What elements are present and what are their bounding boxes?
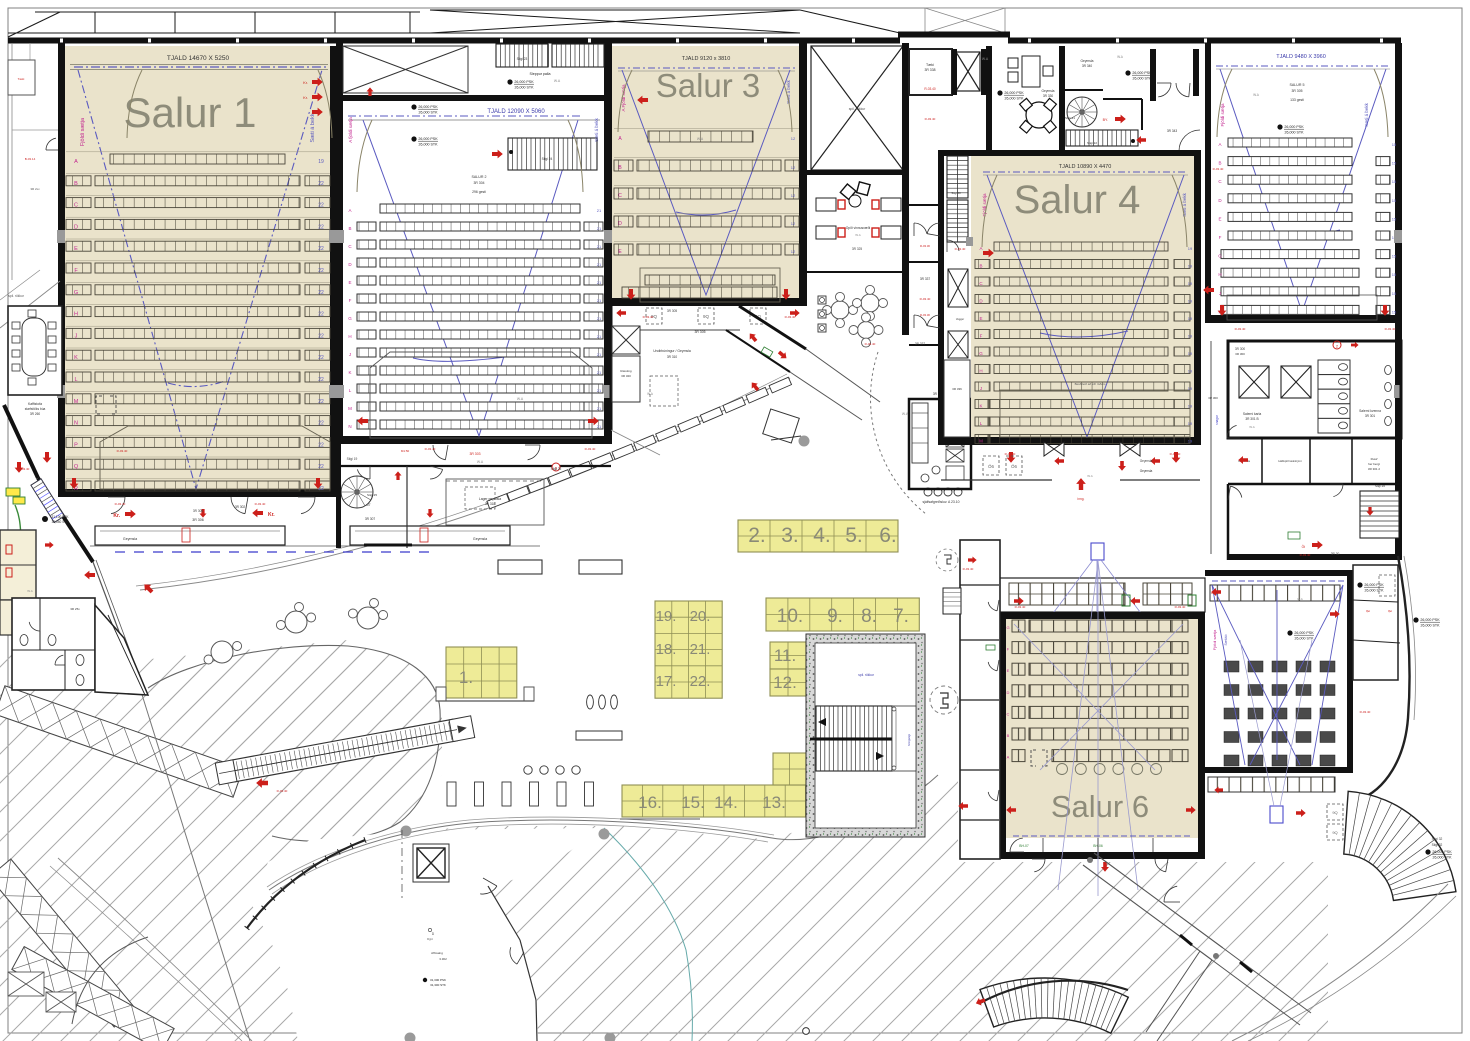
- svg-text:22: 22: [318, 355, 324, 361]
- svg-text:22: 22: [318, 421, 324, 427]
- svg-text:19: 19: [1188, 281, 1193, 286]
- svg-text:R-03.40: R-03.40: [117, 449, 128, 453]
- svg-text:Rusl/: Rusl/: [1371, 457, 1378, 461]
- svg-text:G: G: [1006, 625, 1009, 630]
- svg-text:C: C: [74, 203, 78, 209]
- svg-text:W.A: W.A: [902, 412, 909, 416]
- svg-text:Fjöldi sætja: Fjöldi sætja: [80, 117, 86, 146]
- svg-text:E: E: [348, 280, 351, 285]
- svg-text:A: A: [348, 208, 351, 213]
- svg-text:22: 22: [318, 268, 324, 274]
- svg-text:F: F: [349, 298, 352, 303]
- svg-text:3R 330: 3R 330: [1043, 94, 1054, 98]
- svg-text:snagar: snagar: [1215, 414, 1219, 425]
- svg-text:3R 340: 3R 340: [1082, 64, 1093, 68]
- svg-text:3R 305: 3R 305: [695, 330, 706, 334]
- svg-text:Geymsla: Geymsla: [473, 537, 487, 541]
- svg-text:K: K: [348, 370, 351, 375]
- svg-text:19: 19: [1188, 439, 1193, 444]
- svg-text:Kr.: Kr.: [113, 513, 120, 519]
- svg-text:Affmaing: Affmaing: [431, 951, 443, 955]
- svg-text:21: 21: [597, 352, 602, 357]
- svg-text:R-03.40: R-03.40: [925, 117, 936, 121]
- svg-text:12: 12: [791, 165, 796, 170]
- svg-text:Sæti á bekk: Sæti á bekk: [1364, 102, 1369, 127]
- svg-text:spíl. rökkur: spíl. rökkur: [8, 294, 25, 298]
- svg-text:R-03.40: R-03.40: [1005, 452, 1016, 456]
- svg-text:W.A: W.A: [1117, 55, 1124, 59]
- svg-text:Geymsla: Geymsla: [1080, 59, 1093, 63]
- svg-text:15: 15: [1392, 254, 1397, 259]
- svg-text:D: D: [618, 221, 622, 227]
- svg-text:Stigi 20: Stigi 20: [951, 191, 961, 195]
- svg-text:R-03.40: R-03.40: [1213, 167, 1224, 171]
- svg-text:B-03.14: B-03.14: [25, 157, 36, 161]
- svg-text:W.A: W.A: [982, 57, 989, 61]
- svg-text:TJALD 10890 X 4470: TJALD 10890 X 4470: [1059, 164, 1112, 170]
- svg-text:Besð leið að efri röðum: Besð leið að efri röðum: [1075, 381, 1106, 386]
- svg-text:26,000 STK: 26,000 STK: [1421, 624, 1441, 628]
- svg-text:3R 343: 3R 343: [1167, 129, 1178, 133]
- svg-text:26,000 PSK: 26,000 PSK: [418, 137, 438, 141]
- svg-text:Hálfopið tæknirými: Hálfopið tæknirými: [1278, 458, 1302, 463]
- svg-text:M: M: [74, 399, 79, 405]
- svg-text:Stigi 32: Stigi 32: [1432, 843, 1443, 847]
- svg-text:Ö6: Ö6: [988, 463, 995, 469]
- svg-text:H: H: [1218, 272, 1221, 277]
- svg-text:8.: 8.: [861, 606, 877, 627]
- svg-text:G: G: [74, 290, 78, 296]
- svg-text:Stigi 25: Stigi 25: [551, 467, 562, 471]
- svg-text:Veggur: Veggur: [956, 317, 964, 321]
- svg-text:F: F: [980, 334, 983, 339]
- svg-text:B: B: [979, 264, 982, 269]
- svg-text:A: A: [74, 159, 78, 165]
- svg-text:3R 25x: 3R 25x: [70, 607, 80, 611]
- svg-text:15: 15: [1392, 179, 1397, 184]
- svg-text:Geymsla: Geymsla: [1041, 89, 1054, 93]
- svg-text:spíl. rökkur: spíl. rökkur: [849, 107, 866, 111]
- svg-text:26,000 STK: 26,000 STK: [419, 111, 439, 115]
- svg-text:26,000 PSK: 26,000 PSK: [1294, 631, 1314, 635]
- svg-text:Dýpt: Dýpt: [427, 937, 433, 941]
- svg-text:R-03.40: R-03.40: [955, 247, 966, 251]
- svg-text:21: 21: [597, 208, 602, 213]
- svg-text:R-03.40: R-03.40: [924, 87, 936, 91]
- svg-text:17.: 17.: [656, 673, 677, 690]
- svg-text:9Q: 9Q: [703, 314, 710, 319]
- svg-text:11.: 11.: [774, 646, 796, 665]
- svg-text:inng.: inng.: [1078, 497, 1085, 501]
- svg-text:Ôt: Ôt: [1211, 590, 1214, 595]
- svg-text:21: 21: [597, 316, 602, 321]
- svg-text:3R 2xx: 3R 2xx: [30, 187, 40, 191]
- svg-text:W.A: W.A: [27, 589, 33, 593]
- svg-text:16.: 16.: [638, 793, 662, 812]
- svg-text:E: E: [979, 316, 982, 321]
- svg-text:E: E: [74, 246, 78, 252]
- svg-text:F: F: [1219, 235, 1222, 240]
- svg-text:19: 19: [1188, 404, 1193, 409]
- svg-text:21: 21: [597, 334, 602, 339]
- svg-text:R-03.40: R-03.40: [785, 315, 796, 319]
- svg-text:B: B: [1218, 161, 1221, 166]
- svg-text:12: 12: [791, 193, 796, 198]
- svg-text:3R 337: 3R 337: [920, 277, 931, 281]
- svg-text:TJALD 14670 X 5250: TJALD 14670 X 5250: [167, 55, 230, 62]
- svg-text:7.: 7.: [893, 606, 909, 627]
- svg-text:22: 22: [318, 203, 324, 209]
- svg-text:12.: 12.: [773, 673, 797, 692]
- svg-text:3R 320: 3R 320: [621, 374, 631, 378]
- svg-text:21: 21: [597, 370, 602, 375]
- svg-text:3R 304: 3R 304: [474, 181, 485, 185]
- svg-text:9Q: 9Q: [1332, 810, 1337, 815]
- svg-text:Stigi 26: Stigi 26: [1375, 484, 1385, 488]
- svg-text:W.A: W.A: [517, 397, 524, 401]
- svg-text:22: 22: [318, 399, 324, 405]
- svg-text:19: 19: [1188, 246, 1193, 251]
- svg-text:3R 301 2: 3R 301 2: [1368, 467, 1381, 471]
- svg-text:N: N: [348, 424, 351, 429]
- svg-text:N: N: [74, 421, 78, 427]
- svg-text:296 gesti: 296 gesti: [472, 190, 486, 194]
- svg-text:Stigi 23: Stigi 23: [517, 57, 528, 61]
- svg-text:Kr.: Kr.: [303, 95, 308, 100]
- svg-text:BY.: BY.: [1103, 118, 1108, 122]
- svg-text:3.302: 3.302: [439, 957, 447, 961]
- svg-text:Fjöldi sætja: Fjöldi sætja: [1220, 103, 1225, 127]
- svg-text:C: C: [1007, 711, 1010, 716]
- svg-text:W.A: W.A: [1087, 474, 1093, 478]
- svg-text:15: 15: [1392, 198, 1397, 203]
- svg-text:Geymsla: Geymsla: [1140, 459, 1153, 463]
- svg-text:R-03.40: R-03.40: [1360, 710, 1371, 714]
- svg-text:Salerni karla: Salerni karla: [1243, 412, 1261, 416]
- svg-text:R-03.40: R-03.40: [643, 315, 654, 319]
- svg-text:3R 301: 3R 301: [1365, 414, 1376, 418]
- svg-text:J: J: [349, 352, 351, 357]
- svg-text:26,000 STK: 26,000 STK: [1133, 77, 1153, 81]
- svg-text:J: J: [980, 386, 982, 391]
- svg-text:Lager geymsla: Lager geymsla: [479, 497, 501, 501]
- svg-text:R-03.40: R-03.40: [1175, 605, 1186, 609]
- svg-text:R-03.40: R-03.40: [1385, 327, 1396, 331]
- svg-text:15: 15: [1392, 216, 1397, 221]
- svg-text:Iþó: Iþó: [1388, 609, 1393, 613]
- svg-text:Stigi 21: Stigi 21: [1065, 116, 1075, 120]
- svg-text:C: C: [618, 193, 622, 199]
- svg-text:133 gesti: 133 gesti: [1290, 98, 1304, 102]
- svg-text:15: 15: [1392, 309, 1397, 314]
- svg-text:G: G: [348, 316, 352, 321]
- svg-text:9.: 9.: [827, 606, 843, 627]
- svg-text:J: J: [75, 333, 78, 339]
- svg-text:26,000 PSK: 26,000 PSK: [1420, 618, 1440, 622]
- svg-text:13.: 13.: [762, 793, 786, 812]
- svg-text:3R 260: 3R 260: [30, 412, 41, 416]
- svg-text:L: L: [74, 377, 77, 383]
- svg-text:her bergi: her bergi: [1368, 462, 1380, 466]
- svg-text:3R 325: 3R 325: [852, 247, 863, 251]
- svg-text:Kr.: Kr.: [303, 80, 308, 85]
- svg-text:W.A: W.A: [477, 460, 484, 464]
- svg-text:R-03.40: R-03.40: [585, 447, 596, 451]
- svg-text:3R 306: 3R 306: [192, 518, 204, 522]
- svg-text:W.A: W.A: [1297, 597, 1303, 601]
- svg-text:22: 22: [318, 312, 324, 318]
- svg-text:3.: 3.: [781, 524, 799, 547]
- svg-text:R-03.40: R-03.40: [1235, 327, 1246, 331]
- svg-text:K: K: [979, 404, 982, 409]
- svg-text:Salur 4: Salur 4: [1014, 178, 1141, 222]
- svg-text:E: E: [1218, 216, 1221, 221]
- svg-text:10.: 10.: [777, 606, 803, 627]
- svg-text:5.: 5.: [845, 524, 863, 547]
- svg-text:R-03.40: R-03.40: [425, 447, 436, 451]
- svg-text:TJALD 9120 x 3810: TJALD 9120 x 3810: [682, 56, 731, 62]
- svg-text:Iþó: Iþó: [1366, 609, 1371, 613]
- svg-text:19: 19: [1188, 369, 1193, 374]
- svg-text:J: J: [1219, 291, 1221, 296]
- svg-text:31,100 PSK: 31,100 PSK: [51, 515, 69, 519]
- svg-text:19: 19: [1188, 264, 1193, 269]
- svg-text:G: G: [979, 351, 983, 356]
- svg-text:3R 310: 3R 310: [667, 355, 678, 359]
- svg-text:22: 22: [318, 377, 324, 383]
- svg-text:P: P: [74, 442, 78, 448]
- svg-text:Ôt: Ôt: [1302, 544, 1305, 549]
- svg-text:M: M: [348, 406, 352, 411]
- svg-text:TJALD 12090 X 5060: TJALD 12090 X 5060: [487, 109, 545, 115]
- svg-text:W.A: W.A: [647, 392, 654, 396]
- svg-text:3R 318: 3R 318: [485, 502, 496, 506]
- svg-text:R-03.40: R-03.40: [1015, 605, 1026, 609]
- svg-text:Stigi 32: Stigi 32: [1432, 837, 1443, 841]
- svg-text:21: 21: [597, 226, 602, 231]
- svg-text:Tæki: Tæki: [18, 77, 25, 81]
- svg-text:21: 21: [597, 280, 602, 285]
- svg-text:R-03.40: R-03.40: [1300, 553, 1311, 557]
- svg-text:R-03.40: R-03.40: [1170, 452, 1181, 456]
- svg-text:Stigi 22: Stigi 22: [1087, 141, 1097, 145]
- svg-text:Kr.: Kr.: [268, 512, 275, 518]
- svg-text:12: 12: [791, 221, 796, 226]
- svg-text:K: K: [74, 355, 78, 361]
- svg-text:hringstigi: hringstigi: [907, 734, 911, 746]
- svg-text:3R 300: 3R 300: [1235, 347, 1246, 351]
- svg-text:A fjöldi sætja: A fjöldi sætja: [348, 117, 353, 143]
- svg-text:Ræsting: Ræsting: [620, 369, 632, 373]
- svg-text:26,000 STK: 26,000 STK: [419, 143, 439, 147]
- svg-text:21: 21: [597, 298, 602, 303]
- svg-text:19: 19: [1188, 316, 1193, 321]
- svg-text:Stigi 24: Stigi 24: [542, 157, 553, 161]
- svg-text:sjálfsafgreiðsluv. A 23.10: sjálfsafgreiðsluv. A 23.10: [922, 499, 959, 504]
- svg-text:18.: 18.: [656, 641, 677, 658]
- svg-text:12: 12: [791, 136, 796, 141]
- svg-text:22: 22: [318, 464, 324, 470]
- svg-text:19: 19: [1188, 351, 1193, 356]
- svg-text:G: G: [1218, 254, 1222, 259]
- svg-text:B: B: [348, 226, 351, 231]
- svg-text:22: 22: [318, 290, 324, 296]
- svg-text:Sæti á bekk: Sæti á bekk: [594, 117, 599, 142]
- svg-text:Ö6: Ö6: [1011, 463, 1018, 469]
- svg-text:26,000 PSK: 26,000 PSK: [1284, 125, 1304, 129]
- svg-text:19: 19: [1188, 299, 1193, 304]
- svg-text:3R 306: 3R 306: [193, 509, 204, 513]
- svg-text:Salerni kvenna: Salerni kvenna: [1359, 409, 1381, 413]
- svg-text:3R 30: 3R 30: [1331, 552, 1340, 556]
- svg-text:R-03.40: R-03.40: [255, 502, 266, 506]
- svg-text:15: 15: [1392, 272, 1397, 277]
- svg-text:3R 301 B: 3R 301 B: [1245, 417, 1258, 421]
- svg-text:31,300 STK: 31,300 STK: [430, 983, 446, 987]
- svg-text:15: 15: [1392, 161, 1397, 166]
- svg-text:20.: 20.: [690, 608, 711, 625]
- svg-text:BH-07: BH-07: [1019, 844, 1029, 848]
- svg-text:19: 19: [1188, 421, 1193, 426]
- svg-text:B: B: [74, 181, 78, 187]
- svg-text:A: A: [1218, 142, 1221, 147]
- svg-text:Geymsla: Geymsla: [1140, 469, 1153, 473]
- svg-text:19: 19: [1188, 334, 1193, 339]
- svg-text:3R 300: 3R 300: [1208, 396, 1218, 400]
- svg-text:R-03.40: R-03.40: [865, 342, 876, 346]
- svg-text:E: E: [1007, 668, 1010, 673]
- svg-text:26,000 STK: 26,000 STK: [1365, 589, 1385, 593]
- svg-text:Geymsla: Geymsla: [123, 537, 137, 541]
- svg-text:A: A: [1007, 755, 1010, 760]
- svg-text:26,000 PSK: 26,000 PSK: [514, 80, 534, 84]
- svg-text:Sleppur palla: Sleppur palla: [530, 72, 551, 76]
- svg-text:Opið vinnusvæði: Opið vinnusvæði: [846, 225, 871, 230]
- svg-text:26,000 STK: 26,000 STK: [1295, 637, 1315, 641]
- svg-text:15: 15: [1392, 291, 1397, 296]
- svg-text:22: 22: [318, 333, 324, 339]
- svg-text:Sæti á bekk: Sæti á bekk: [1182, 192, 1187, 217]
- svg-text:2.: 2.: [748, 524, 766, 547]
- svg-text:spíl. rökkur: spíl. rökkur: [858, 673, 875, 677]
- svg-text:31,040 STK: 31,040 STK: [52, 520, 70, 524]
- svg-text:H: H: [979, 369, 982, 374]
- svg-text:W.A: W.A: [554, 79, 561, 83]
- svg-text:1.: 1.: [459, 668, 473, 687]
- svg-text:H: H: [348, 334, 351, 339]
- svg-text:15.: 15.: [681, 793, 705, 812]
- svg-text:Sæti á bekk: Sæti á bekk: [310, 113, 316, 142]
- svg-text:SALUR 2: SALUR 2: [472, 175, 487, 179]
- svg-text:26,000 PSK: 26,000 PSK: [1004, 91, 1024, 95]
- svg-text:R-03.30: R-03.30: [920, 244, 930, 248]
- svg-text:D: D: [1007, 690, 1010, 695]
- svg-text:D: D: [74, 224, 78, 230]
- svg-text:6.: 6.: [879, 524, 897, 547]
- svg-text:15: 15: [1392, 142, 1397, 147]
- svg-text:19.: 19.: [656, 608, 677, 625]
- svg-text:Stigi 25: Stigi 25: [367, 493, 377, 497]
- svg-text:22: 22: [318, 246, 324, 252]
- svg-text:19: 19: [318, 159, 324, 165]
- svg-text:21: 21: [597, 424, 602, 429]
- svg-text:21: 21: [597, 262, 602, 267]
- svg-text:Tæki: Tæki: [926, 63, 934, 67]
- svg-text:3R 336: 3R 336: [952, 387, 962, 391]
- svg-text:W.A: W.A: [697, 137, 704, 141]
- svg-text:3R 307: 3R 307: [365, 517, 376, 521]
- svg-text:21.: 21.: [690, 641, 711, 658]
- svg-text:Q: Q: [74, 464, 79, 470]
- svg-text:9Q: 9Q: [1332, 830, 1337, 835]
- svg-text:SALUR 5: SALUR 5: [1290, 83, 1305, 87]
- svg-text:26,000 STK: 26,000 STK: [1285, 131, 1305, 135]
- svg-text:R-03.40: R-03.40: [19, 467, 30, 471]
- svg-text:H: H: [74, 312, 78, 318]
- svg-text:3R 338: 3R 338: [925, 68, 936, 72]
- svg-text:W.A: W.A: [855, 233, 861, 237]
- svg-text:3R 337: 3R 337: [915, 342, 926, 346]
- svg-text:21: 21: [597, 244, 602, 249]
- svg-text:26,000 STK: 26,000 STK: [1433, 856, 1453, 860]
- svg-text:22: 22: [318, 181, 324, 187]
- svg-text:Salur 1: Salur 1: [123, 89, 256, 136]
- svg-text:R-03.40: R-03.40: [920, 297, 931, 301]
- svg-text:26,000 PSK: 26,000 PSK: [418, 105, 438, 109]
- svg-text:19: 19: [1188, 386, 1193, 391]
- svg-text:21: 21: [597, 388, 602, 393]
- svg-text:Fjöldi sætja: Fjöldi sætja: [982, 193, 987, 217]
- svg-text:3R 303: 3R 303: [470, 452, 481, 456]
- svg-text:3R 305: 3R 305: [1292, 89, 1303, 93]
- svg-text:22: 22: [318, 442, 324, 448]
- svg-text:Undirbúningur / Geymsla: Undirbúningur / Geymsla: [653, 349, 691, 353]
- svg-text:31,300 PSK: 31,300 PSK: [430, 978, 446, 982]
- svg-text:26,000 PSK: 26,000 PSK: [1432, 850, 1452, 854]
- svg-text:W.A: W.A: [1253, 93, 1260, 97]
- svg-text:4.: 4.: [813, 524, 831, 547]
- svg-text:B: B: [1007, 733, 1010, 738]
- svg-text:Salur 6: Salur 6: [1051, 789, 1149, 824]
- svg-text:Fjöldi sætja: Fjöldi sætja: [1212, 629, 1217, 650]
- svg-text:14.: 14.: [714, 793, 738, 812]
- svg-text:12: 12: [791, 249, 796, 254]
- svg-text:R-03.30: R-03.30: [920, 313, 930, 317]
- svg-text:R-03.40: R-03.40: [277, 789, 288, 793]
- svg-text:22: 22: [318, 224, 324, 230]
- svg-text:starfsfólks búa: starfsfólks búa: [25, 407, 46, 411]
- svg-text:M: M: [979, 439, 983, 444]
- svg-text:Stigi 19: Stigi 19: [347, 457, 358, 461]
- svg-text:26,000 PSK: 26,000 PSK: [1364, 583, 1384, 587]
- svg-text:21: 21: [597, 406, 602, 411]
- svg-text:26,000 PSK: 26,000 PSK: [1132, 71, 1152, 75]
- svg-text:Sætiáb: Sætiáb: [1224, 634, 1228, 645]
- svg-text:R-03.40: R-03.40: [115, 502, 126, 506]
- svg-text:3R 302: 3R 302: [235, 505, 246, 509]
- svg-text:26,000 STK: 26,000 STK: [1005, 97, 1025, 101]
- svg-text:Kaffistofa: Kaffistofa: [28, 402, 42, 406]
- svg-text:26,000 STK: 26,000 STK: [515, 86, 535, 90]
- svg-text:TJALD 9480 X 3960: TJALD 9480 X 3960: [1276, 54, 1326, 60]
- svg-text:3R 300: 3R 300: [1235, 352, 1245, 356]
- svg-text:R-03.40: R-03.40: [963, 567, 974, 571]
- svg-text:Salur 3: Salur 3: [656, 67, 761, 104]
- svg-text:W.A: W.A: [1249, 425, 1255, 429]
- svg-text:M1:50: M1:50: [401, 449, 410, 453]
- svg-text:22.: 22.: [690, 673, 711, 690]
- svg-text:3R 305: 3R 305: [667, 309, 678, 313]
